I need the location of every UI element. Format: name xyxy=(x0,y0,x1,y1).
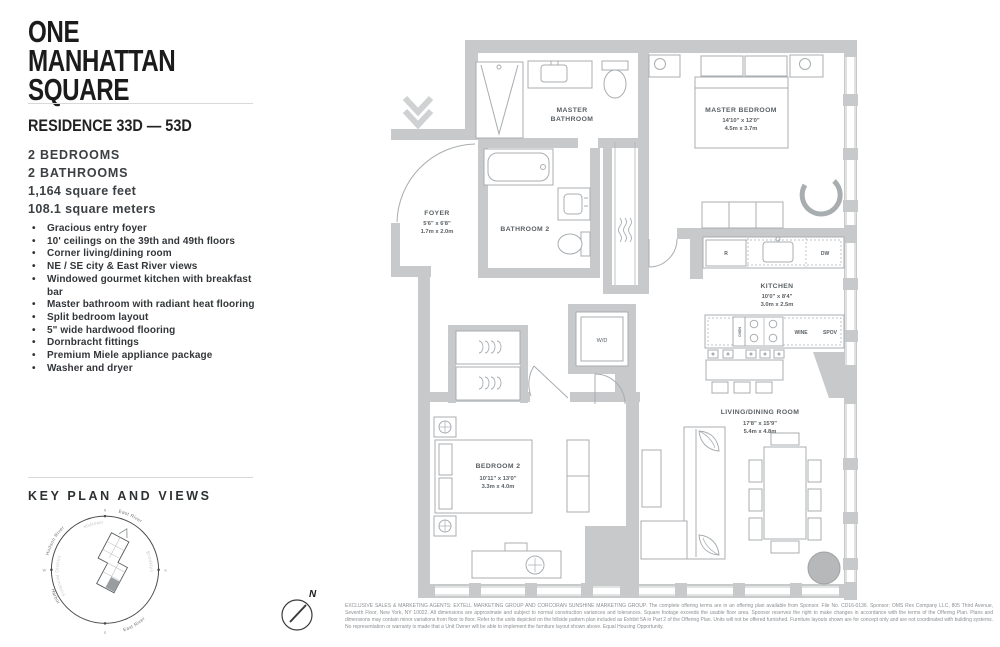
bathtub xyxy=(484,149,553,185)
svg-text:MASTER: MASTER xyxy=(556,107,587,114)
desk xyxy=(472,551,561,578)
svg-text:MASTER BEDROOM: MASTER BEDROOM xyxy=(705,107,777,114)
svg-text:Midtown: Midtown xyxy=(83,520,104,530)
east-river-se-label: East River xyxy=(122,616,146,632)
svg-text:14'10" x 12'0": 14'10" x 12'0" xyxy=(722,118,760,124)
sofa-chaise xyxy=(641,521,687,559)
dining-chair xyxy=(808,518,821,540)
feature-list: Gracious entry foyer 10' ceilings on the… xyxy=(30,223,260,375)
svg-text:LIVING/DINING ROOM: LIVING/DINING ROOM xyxy=(721,409,800,416)
kitchen-label: KITCHEN 10'0" x 8'4" 3.0m x 2.5m xyxy=(760,283,793,308)
bedroom2-label: BEDROOM 2 10'11" x 13'0" 3.3m x 4.0m xyxy=(476,463,521,490)
nightstand xyxy=(649,55,680,77)
foyer-label: FOYER 5'6" x 6'8" 1.7m x 2.0m xyxy=(421,210,454,235)
bar-stool xyxy=(712,382,728,393)
bathroom2-label: BATHROOM 2 xyxy=(500,226,549,233)
bedrooms-count: 2 BEDROOMS xyxy=(28,146,128,164)
dining-set xyxy=(749,433,821,553)
master-bathroom-label: MASTER BATHROOM xyxy=(551,107,594,123)
dining-chair xyxy=(749,489,762,511)
plan-north-compass: N xyxy=(276,583,322,637)
feature-item: NE / SE city & East River views xyxy=(30,261,260,274)
key-plan-building-footprint xyxy=(87,523,143,592)
bathroom2-sink xyxy=(558,188,590,220)
feature-item: Premium Miele appliance package xyxy=(30,350,260,363)
svg-text:KITCHEN: KITCHEN xyxy=(760,283,793,290)
bar-stool xyxy=(756,382,772,393)
feature-item: Corner living/dining room xyxy=(30,248,260,261)
speed-oven-label: SPOV xyxy=(823,330,838,336)
area-square-meters: 108.1 square meters xyxy=(28,200,156,218)
compass-w-label: W xyxy=(43,569,47,573)
hanging-clothes-symbol xyxy=(619,218,632,242)
refrigerator-label: R xyxy=(724,251,728,257)
key-plan-title: KEY PLAN AND VIEWS xyxy=(28,489,212,503)
pillow xyxy=(439,444,452,475)
midtown-label: Midtown xyxy=(83,520,104,530)
dining-chair xyxy=(749,518,762,540)
brand-line-3: SQUARE xyxy=(28,76,175,105)
window-kitchen xyxy=(843,243,858,365)
feature-item: 5" wide hardwood flooring xyxy=(30,325,260,338)
nightstand xyxy=(434,516,456,536)
dining-chair xyxy=(808,460,821,482)
svg-text:17'8" x 15'9": 17'8" x 15'9" xyxy=(743,421,777,427)
dining-chair xyxy=(808,489,821,511)
bedroom2-furniture xyxy=(434,417,589,578)
bar-stools xyxy=(708,350,784,358)
bedroom2-door-arc xyxy=(529,366,534,396)
svg-text:East River: East River xyxy=(118,509,143,524)
round-chair xyxy=(802,181,840,214)
feature-item: Gracious entry foyer xyxy=(30,223,260,236)
compass-n-label: N xyxy=(104,509,107,513)
bar-stool xyxy=(734,382,750,393)
dishwasher-label: DW xyxy=(821,251,830,257)
desk-accessory xyxy=(505,543,527,551)
svg-text:4.5m x 3.7m: 4.5m x 3.7m xyxy=(725,126,758,132)
svg-text:BATHROOM: BATHROOM xyxy=(551,116,594,123)
master-bedroom-door-arc xyxy=(649,239,677,267)
svg-text:Financial District: Financial District xyxy=(55,554,67,597)
brand-logo: ONE MANHATTAN SQUARE xyxy=(28,18,175,104)
bedroom2-dresser xyxy=(567,440,589,512)
east-river-ne-label: East River xyxy=(118,509,143,524)
sidebar-divider-top xyxy=(28,103,253,104)
svg-text:East River: East River xyxy=(122,616,146,632)
svg-text:Brooklyn: Brooklyn xyxy=(145,550,154,572)
floor-plan-drawing: W/D xyxy=(285,30,875,605)
svg-text:5.4m x 4.8m: 5.4m x 4.8m xyxy=(744,429,777,435)
hall-closet xyxy=(615,142,635,285)
bathrooms-count: 2 BATHROOMS xyxy=(28,164,128,182)
laundry-closet: W/D xyxy=(576,312,628,366)
window-living-east xyxy=(843,404,858,582)
svg-text:10'0" x 8'4": 10'0" x 8'4" xyxy=(762,294,793,300)
desk-chair xyxy=(526,556,544,574)
oven-label: OVEN xyxy=(738,327,742,337)
wine-fridge-label: WINE xyxy=(794,330,808,336)
compass-e-label: E xyxy=(165,569,168,573)
media-console xyxy=(642,450,661,507)
feature-item: Dornbracht fittings xyxy=(30,337,260,350)
bed-bath-summary: 2 BEDROOMS 2 BATHROOMS xyxy=(28,146,128,182)
svg-text:1.7m x 2.0m: 1.7m x 2.0m xyxy=(421,229,454,235)
feature-item: Master bathroom with radiant heat floori… xyxy=(30,299,260,312)
svg-text:3.3m x 4.0m: 3.3m x 4.0m xyxy=(482,484,515,490)
window-master-bedroom xyxy=(843,57,858,225)
area-square-feet: 1,164 square feet xyxy=(28,182,156,200)
bedroom2-door-leaf xyxy=(534,366,568,398)
feature-item: Split bedroom layout xyxy=(30,312,260,325)
key-plan-diagram: N E S W Hudson River East River Midtown … xyxy=(38,507,172,637)
breakfast-bar xyxy=(706,360,783,380)
laundry-label: W/D xyxy=(597,338,608,344)
feature-item: 10' ceilings on the 39th and 49th floors xyxy=(30,236,260,249)
nightstand xyxy=(790,55,823,77)
master-bedroom-furniture xyxy=(649,55,840,228)
sidebar: ONE MANHATTAN SQUARE RESIDENCE 33D — 53D… xyxy=(0,0,270,647)
svg-text:3.0m x 2.5m: 3.0m x 2.5m xyxy=(761,302,794,308)
sofa xyxy=(684,427,725,559)
bathroom2-toilet xyxy=(558,232,590,256)
pillow xyxy=(745,56,787,76)
bathroom2-fixtures xyxy=(484,149,590,256)
nightstand xyxy=(434,417,456,437)
dining-chair xyxy=(749,460,762,482)
kitchen-sink xyxy=(763,242,793,262)
master-toilet xyxy=(602,61,628,98)
entry-direction-icon xyxy=(405,98,431,125)
compass-s-label: S xyxy=(104,631,107,635)
feature-item: Washer and dryer xyxy=(30,363,260,376)
sidebar-divider-bottom xyxy=(28,477,253,478)
cooktop xyxy=(745,317,783,346)
area-summary: 1,164 square feet 108.1 square meters xyxy=(28,182,156,218)
plan-north-letter: N xyxy=(309,589,317,600)
key-plan-north-arrow xyxy=(119,527,131,538)
financial-district-label: Financial District xyxy=(55,554,67,597)
floorplan-page: ONE MANHATTAN SQUARE RESIDENCE 33D — 53D… xyxy=(0,0,1000,647)
pillow xyxy=(439,478,452,509)
svg-text:FOYER: FOYER xyxy=(424,210,449,217)
master-bathroom-fixtures xyxy=(476,61,628,138)
svg-text:10'11" x 13'0": 10'11" x 13'0" xyxy=(480,476,517,482)
svg-text:BEDROOM 2: BEDROOM 2 xyxy=(476,463,521,470)
dining-table xyxy=(764,447,806,539)
pillow xyxy=(701,56,743,76)
bedroom2-closet xyxy=(456,331,520,400)
legal-disclaimer: EXCLUSIVE SALES & MARKETING AGENTS: EXTE… xyxy=(345,603,993,631)
brooklyn-label: Brooklyn xyxy=(145,550,154,572)
svg-text:5'6" x 6'8": 5'6" x 6'8" xyxy=(423,221,451,227)
structural-column xyxy=(808,552,840,584)
living-dining-label: LIVING/DINING ROOM 17'8" x 15'9" 5.4m x … xyxy=(721,409,800,435)
living-dining-furniture xyxy=(641,427,840,584)
feature-item: Windowed gourmet kitchen with breakfast … xyxy=(30,274,260,299)
dining-chair xyxy=(771,541,799,553)
master-dresser xyxy=(702,202,783,228)
residence-title: RESIDENCE 33D — 53D xyxy=(28,116,192,136)
